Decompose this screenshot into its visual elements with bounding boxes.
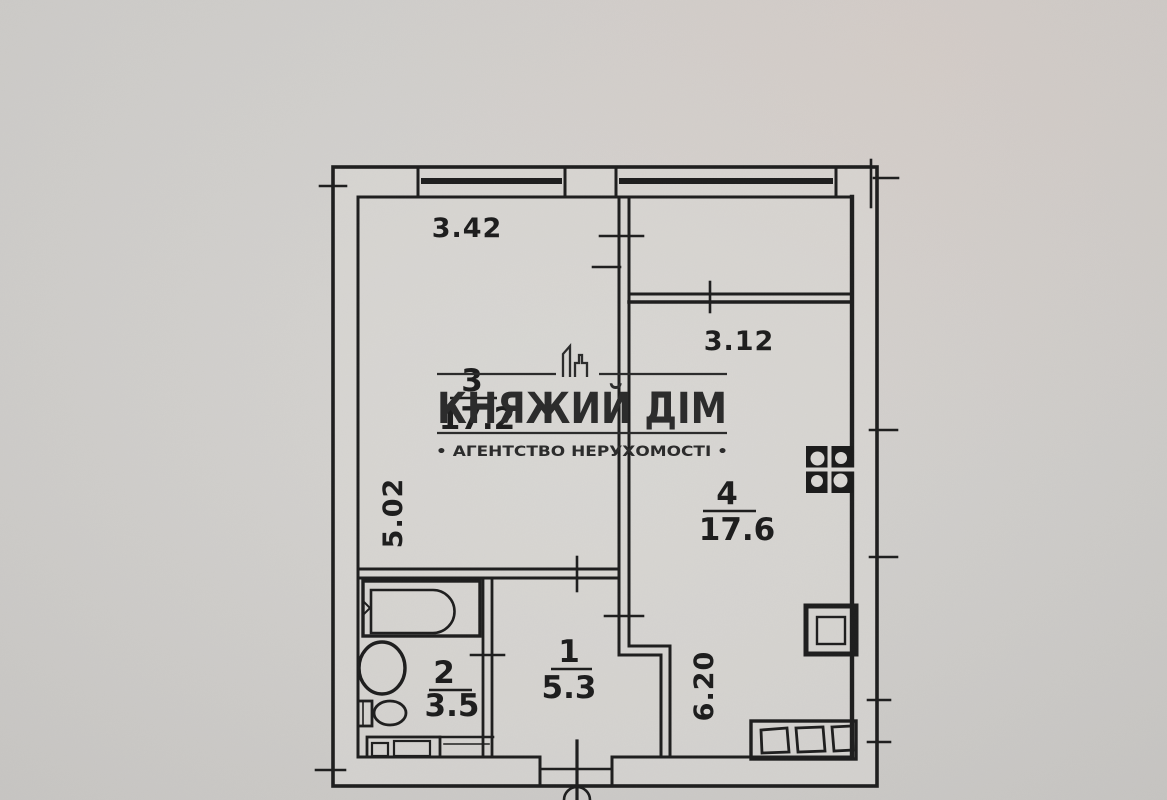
floor-plan-image: 3.42 3.12 5.02 6.20 3 17.2 4 17.6 1 5.3 …: [0, 0, 1167, 800]
floor-plan-photo: 3.42 3.12 5.02 6.20 3 17.2 4 17.6 1 5.3 …: [0, 0, 1167, 800]
paper-grain: [0, 0, 1167, 800]
